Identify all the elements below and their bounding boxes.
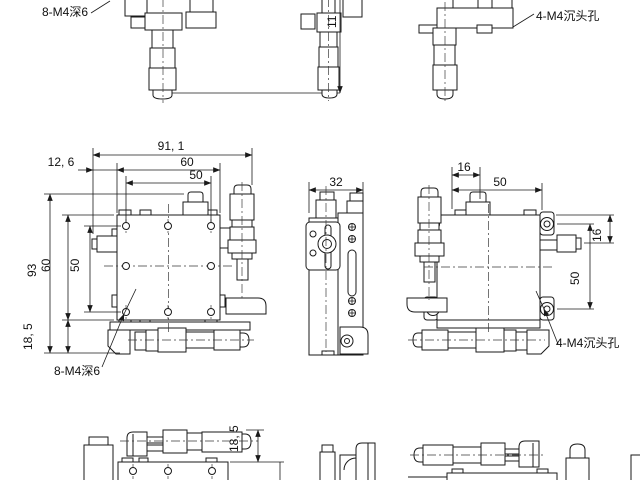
dim-back-top-50: 50 — [493, 175, 507, 189]
bottom-left-dimensions: 18, 5 — [227, 425, 284, 480]
micrometer-head-top-left — [145, 13, 182, 99]
dim-back-right-50: 50 — [568, 271, 582, 285]
dim-front-left-offset: 12, 6 — [48, 155, 75, 169]
engineering-drawing-canvas: 8-M4深6 11 4-M4沉头孔 — [0, 0, 640, 480]
dim-back-top-16: 16 — [457, 160, 471, 174]
dim-front-top-50: 50 — [189, 168, 203, 182]
micrometer-bottom-right-view — [410, 441, 545, 467]
dim-front-bottom-185: 18, 5 — [21, 323, 35, 350]
top-right-partial-view: 4-M4沉头孔 — [419, 0, 599, 103]
dim-front-total-width: 91, 1 — [158, 139, 185, 153]
stage-drawing-svg: 8-M4深6 11 4-M4沉头孔 — [0, 0, 640, 480]
micrometer-bottom-back — [408, 320, 549, 354]
side-view: 32 — [306, 175, 368, 355]
dim-front-side-50: 50 — [68, 258, 82, 272]
dim-back-right-16: 16 — [590, 228, 604, 242]
dim-top-height: 11 — [325, 15, 339, 28]
micrometer-bottom-front — [108, 322, 254, 354]
bottom-middle-fragment — [320, 443, 375, 480]
thread-note-top: 8-M4深6 — [42, 5, 88, 19]
edge-fragment — [631, 455, 640, 480]
dim-front-side-60: 60 — [39, 258, 53, 272]
dim-bottom-185: 18, 5 — [227, 425, 241, 452]
bottom-right-partial-view — [408, 441, 640, 480]
countersink-note-back: 4-M4沉头孔 — [556, 336, 619, 350]
dim-front-height-93: 93 — [25, 263, 39, 277]
top-left-partial-view: 8-M4深6 — [42, 0, 340, 103]
bottom-right-plate — [447, 473, 557, 480]
top-middle-partial-view: 11 — [301, 0, 362, 101]
front-view: 91, 1 12, 6 60 50 93 60 50 — [21, 139, 266, 378]
bottom-left-partial-view: 18, 5 — [84, 425, 284, 480]
countersink-note-top: 4-M4沉头孔 — [536, 9, 599, 23]
back-view: 16 50 16 50 4-M4沉头孔 — [407, 160, 619, 354]
dim-side-width: 32 — [329, 175, 343, 189]
micrometer-right-front — [220, 182, 266, 314]
leader-countersink-note-top — [513, 14, 534, 27]
leader-thread-note-top — [91, 1, 110, 13]
thread-note-front: 8-M4深6 — [54, 364, 100, 378]
dim-front-top-60: 60 — [180, 155, 194, 169]
